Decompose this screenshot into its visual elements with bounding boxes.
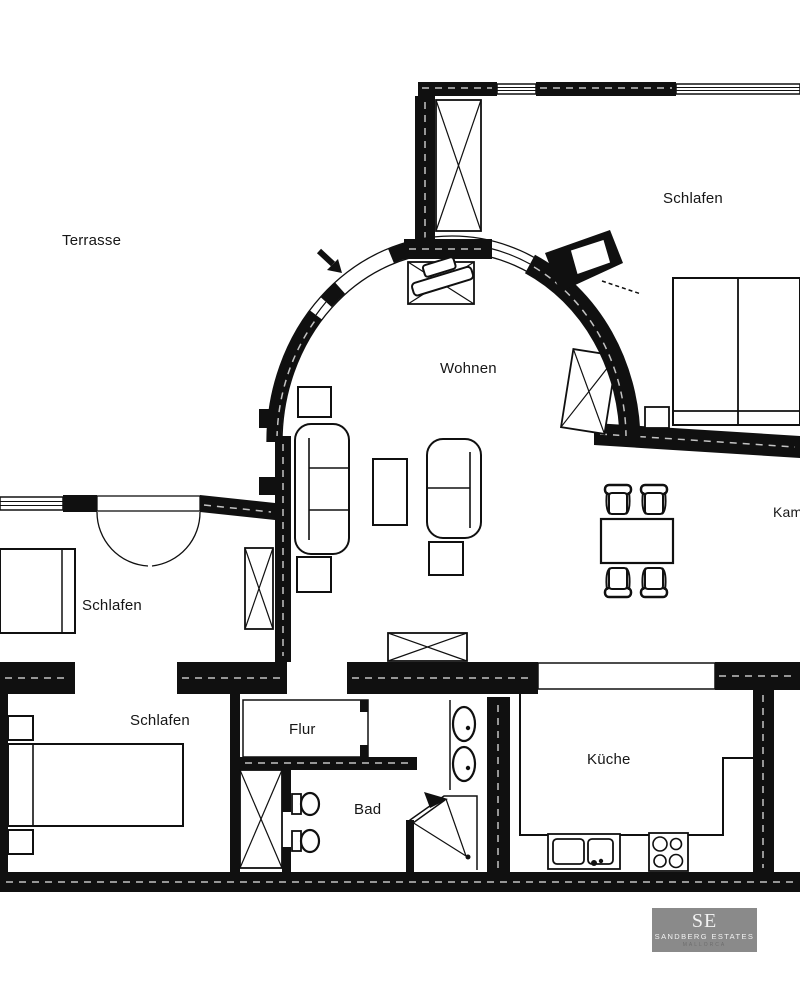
kitchen-sink-icon: [548, 834, 620, 869]
bottom-wall: [0, 872, 800, 892]
sink-icon: [450, 700, 475, 790]
wardrobe-icon: [245, 548, 273, 629]
logo-monogram: SE: [652, 911, 757, 931]
room-label-flur: Flur: [289, 721, 316, 738]
chair-icon: [605, 568, 631, 597]
bed-icon: [673, 278, 800, 425]
logo-location: MALLORCA: [652, 942, 757, 948]
room-label-schlafen-mid: Schlafen: [82, 597, 142, 614]
kitchen-pass-opening: [538, 663, 715, 689]
chair-icon: [641, 485, 667, 514]
pilaster: [259, 477, 277, 495]
closet-icon: [240, 770, 282, 868]
pilaster: [259, 409, 277, 428]
floor-plan: Terrasse Schlafen Wohnen Schlafen Schlaf…: [0, 0, 800, 1000]
kitchen: [520, 688, 774, 875]
room-label-bad: Bad: [354, 801, 381, 818]
entrance-arrow-icon: [319, 251, 342, 273]
bed-icon: [0, 549, 75, 633]
room-label-wohnen: Wohnen: [440, 360, 497, 377]
stove-icon: [649, 833, 688, 871]
room-label-kueche: Küche: [587, 751, 631, 768]
sofa-icon: [295, 424, 349, 554]
window-icon: [497, 84, 536, 94]
side-table-icon: [298, 387, 331, 417]
nightstand-icon: [8, 716, 33, 740]
wardrobe-icon: [436, 100, 481, 231]
middle-wall-band: [0, 662, 800, 694]
agency-logo: SE SANDBERG ESTATES MALLORCA: [652, 908, 757, 952]
nightstand-icon: [8, 830, 33, 854]
room-label-kamin: Kamin: [773, 504, 800, 520]
entrance-sideboard-icon: [407, 252, 474, 304]
room-label-schlafen-bottom: Schlafen: [130, 712, 190, 729]
shower-icon: [406, 792, 477, 872]
room-label-terrasse: Terrasse: [62, 232, 121, 249]
toilet-icon: [292, 793, 319, 815]
mid-bedroom-furniture: [0, 548, 273, 633]
logo-name: SANDBERG ESTATES: [652, 932, 757, 941]
bottom-bedroom: [0, 694, 240, 875]
bed-icon: [8, 744, 183, 826]
dining-table-icon: [601, 519, 673, 563]
bidet-icon: [292, 830, 319, 852]
side-table-icon: [429, 542, 463, 575]
side-table-icon: [297, 557, 331, 592]
chair-icon: [641, 568, 667, 597]
chair-icon: [605, 485, 631, 514]
hallway: [240, 700, 417, 770]
nightstand-icon: [645, 407, 669, 428]
sideboard-icon: [388, 633, 467, 661]
window-icon: [676, 84, 800, 94]
window-icon: [0, 497, 63, 510]
room-label-schlafen-top: Schlafen: [663, 190, 723, 207]
double-door-icon: [97, 496, 200, 566]
counter-outline: [520, 690, 753, 835]
loveseat-icon: [427, 439, 481, 538]
coffee-table-icon: [373, 459, 407, 525]
floor-plan-drawing: [0, 0, 800, 1000]
